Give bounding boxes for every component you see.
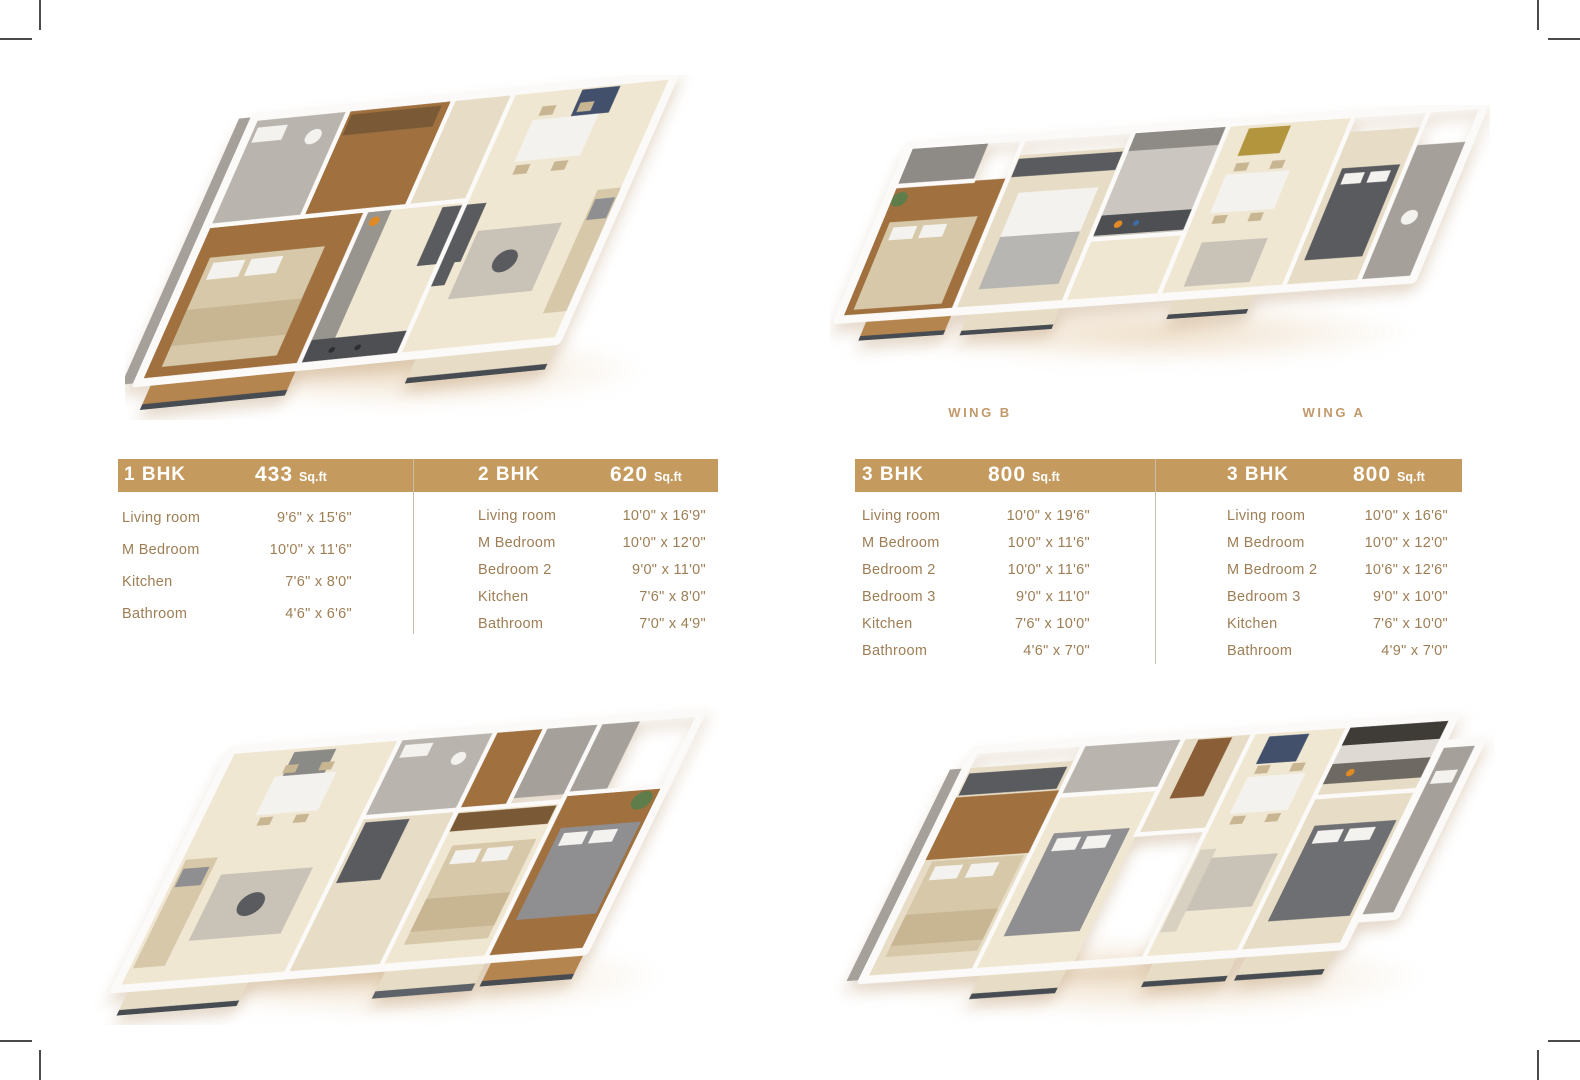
crop-mark-top-right-h [1548, 38, 1580, 40]
table-row: Living room10'0" x 16'9" [478, 502, 706, 529]
table-row: Living room10'0" x 19'6" [862, 502, 1090, 529]
plan-area: 620 Sq.ft [610, 463, 682, 487]
crop-mark-bottom-left-v [39, 1050, 41, 1080]
plan-name: 2 BHK [478, 464, 540, 486]
table-row: Kitchen7'6" x 8'0" [478, 583, 706, 610]
crop-mark-top-left-h [0, 38, 32, 40]
floorplan-1bhk-render [125, 75, 715, 420]
rooms-2bhk: Living room10'0" x 16'9" M Bedroom10'0" … [478, 502, 706, 637]
table-body: Living room9'6" x 15'6" M Bedroom10'0" x… [118, 492, 718, 642]
table-row: Living room9'6" x 15'6" [122, 502, 352, 534]
table-row: M Bedroom 210'6" x 12'6" [1227, 556, 1448, 583]
plan-area: 800 Sq.ft [1353, 463, 1425, 487]
brochure-page: WING B WING A 1 BHK 433 Sq.ft 2 BHK 620 … [0, 0, 1580, 1080]
table-row: Living room10'0" x 16'6" [1227, 502, 1448, 529]
plan-name: 3 BHK [1227, 464, 1289, 486]
table-row: Kitchen7'6" x 10'0" [1227, 610, 1448, 637]
table-row: M Bedroom10'0" x 11'6" [862, 529, 1090, 556]
crop-mark-top-right-v [1537, 0, 1539, 30]
rooms-1bhk: Living room9'6" x 15'6" M Bedroom10'0" x… [122, 502, 352, 630]
table-row: Bathroom7'0" x 4'9" [478, 610, 706, 637]
table-header: 1 BHK 433 Sq.ft 2 BHK 620 Sq.ft [118, 459, 718, 492]
rooms-3bhk-wing-a: Living room10'0" x 16'6" M Bedroom10'0" … [1227, 502, 1448, 664]
table-row: M Bedroom10'0" x 12'0" [1227, 529, 1448, 556]
table-row: Bedroom 210'0" x 11'6" [862, 556, 1090, 583]
plan-area: 800 Sq.ft [988, 463, 1060, 487]
rooms-3bhk-wing-b: Living room10'0" x 19'6" M Bedroom10'0" … [862, 502, 1090, 664]
spec-table-3bhk-3bhk: 3 BHK 800 Sq.ft 3 BHK 800 Sq.ft Living r… [855, 459, 1462, 669]
plan-area: 433 Sq.ft [255, 463, 327, 487]
table-row: Bathroom4'6" x 7'0" [862, 637, 1090, 664]
plan-name: 1 BHK [124, 464, 186, 486]
plan-name: 3 BHK [862, 464, 924, 486]
table-row: Bathroom4'6" x 6'6" [122, 598, 352, 630]
floorplan-2bhk-render [82, 695, 742, 1025]
floorplan-3bhk-wings-render [830, 105, 1490, 400]
table-row: Bedroom 39'0" x 11'0" [862, 583, 1090, 610]
table-row: Bedroom 39'0" x 10'0" [1227, 583, 1448, 610]
table-row: Bedroom 29'0" x 11'0" [478, 556, 706, 583]
table-row: Kitchen7'6" x 8'0" [122, 566, 352, 598]
crop-mark-bottom-left-h [0, 1040, 32, 1042]
column-divider [1155, 459, 1156, 664]
spec-table-1bhk-2bhk: 1 BHK 433 Sq.ft 2 BHK 620 Sq.ft Living r… [118, 459, 718, 642]
table-row: M Bedroom10'0" x 12'0" [478, 529, 706, 556]
crop-mark-top-left-v [39, 0, 41, 30]
table-row: Kitchen7'6" x 10'0" [862, 610, 1090, 637]
table-header: 3 BHK 800 Sq.ft 3 BHK 800 Sq.ft [855, 459, 1462, 492]
floorplan-3bhk-render [825, 700, 1495, 1025]
table-row: M Bedroom10'0" x 11'6" [122, 534, 352, 566]
column-divider [413, 459, 414, 634]
wing-b-label: WING B [938, 405, 1022, 420]
crop-mark-bottom-right-h [1548, 1040, 1580, 1042]
table-row: Bathroom4'9" x 7'0" [1227, 637, 1448, 664]
wing-a-label: WING A [1292, 405, 1376, 420]
crop-mark-bottom-right-v [1537, 1050, 1539, 1080]
table-body: Living room10'0" x 19'6" M Bedroom10'0" … [855, 492, 1462, 669]
